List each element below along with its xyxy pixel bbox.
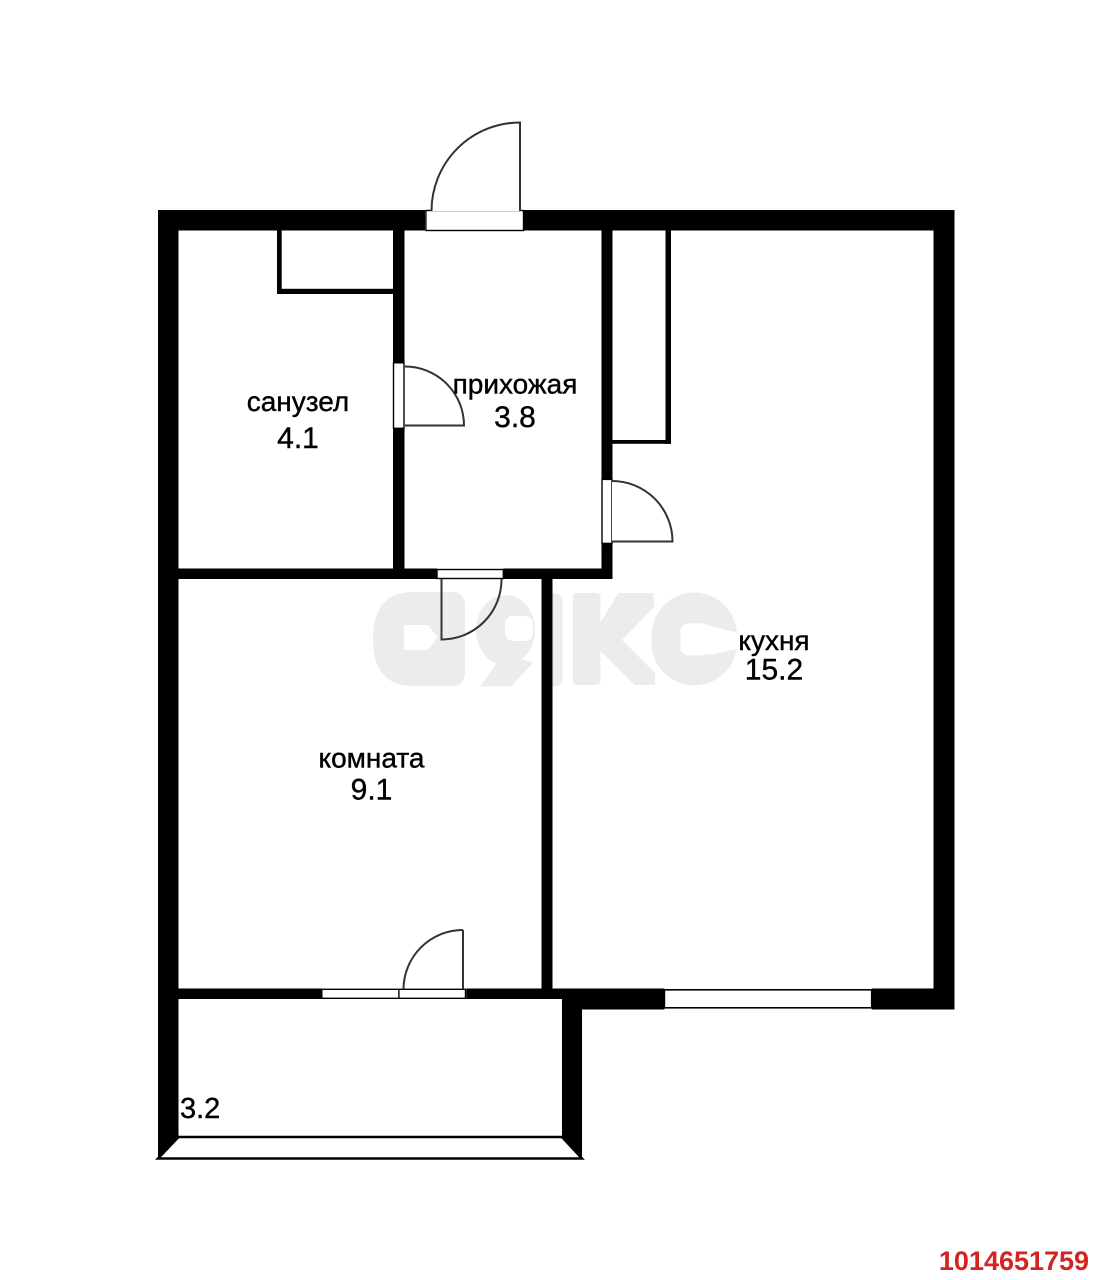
svg-text:15.2: 15.2 xyxy=(745,654,803,687)
svg-text:4.1: 4.1 xyxy=(277,422,319,455)
svg-text:3.8: 3.8 xyxy=(494,401,536,434)
svg-text:3.2: 3.2 xyxy=(180,1093,220,1125)
svg-text:1014651759: 1014651759 xyxy=(939,1246,1089,1276)
svg-text:комната: комната xyxy=(319,743,425,774)
svg-text:санузел: санузел xyxy=(247,386,350,417)
svg-text:9.1: 9.1 xyxy=(351,774,393,807)
svg-text:кухня: кухня xyxy=(738,625,809,656)
svg-text:прихожая: прихожая xyxy=(453,369,578,400)
